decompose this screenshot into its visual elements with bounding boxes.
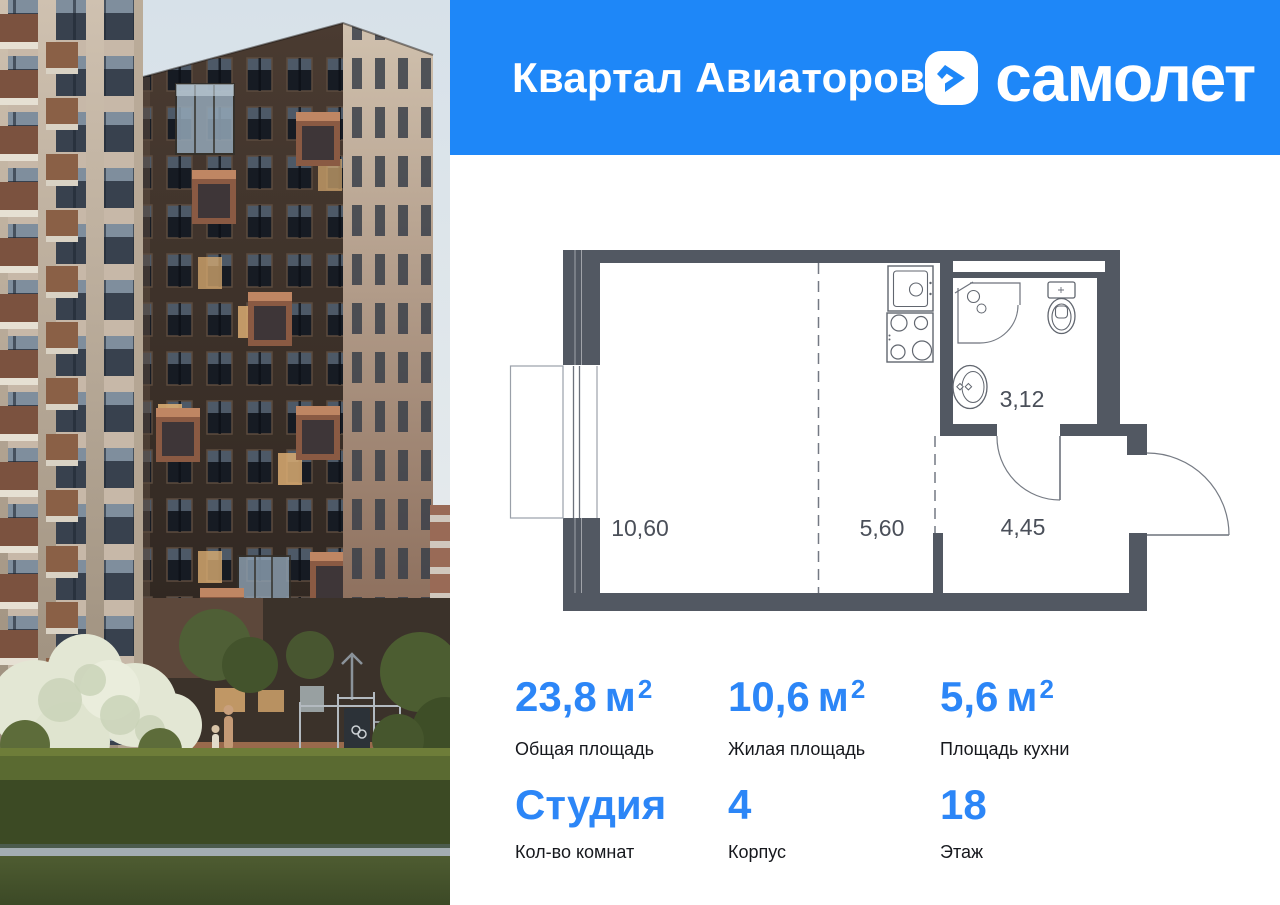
floorplan-drawing: 10,60 5,60 3,12 4,45 xyxy=(450,230,1280,630)
living-area-label: Жилая площадь xyxy=(728,739,940,760)
hallway-area-label: 4,45 xyxy=(1001,514,1046,540)
total-area-label: Общая площадь xyxy=(515,739,728,760)
stat-living-area: 10,6м2 Жилая площадь xyxy=(728,674,940,760)
floor-value: 18 xyxy=(940,782,1280,828)
floor-label: Этаж xyxy=(940,842,1280,863)
kitchen-area-label: Площадь кухни xyxy=(940,739,1280,760)
kitchen-sink xyxy=(888,266,933,311)
project-title: Квартал Авиаторов xyxy=(512,54,925,102)
balcony-window xyxy=(511,366,598,518)
kitchen-area-label: 5,60 xyxy=(860,515,905,541)
header-bar: Квартал Авиаторов самолет xyxy=(450,0,1280,155)
stat-kitchen-area: 5,6м2 Площадь кухни xyxy=(940,674,1280,760)
rooms-label: Кол-во комнат xyxy=(515,842,728,863)
stat-rooms: Студия Кол-во комнат xyxy=(515,782,728,863)
stove xyxy=(887,313,933,362)
samolet-chevron-icon xyxy=(925,51,978,105)
stat-building: 4 Корпус xyxy=(728,782,940,863)
kitchen-area-value: 5,6м2 xyxy=(940,674,1280,725)
toilet xyxy=(1048,282,1075,334)
stat-floor: 18 Этаж xyxy=(940,782,1280,863)
building-label: Корпус xyxy=(728,842,940,863)
brand-name: самолет xyxy=(995,45,1255,111)
unit-info-row: Студия Кол-во комнат 4 Корпус 18 Этаж xyxy=(450,782,1280,863)
area-stats-row: 23,8м2 Общая площадь 10,6м2 Жилая площад… xyxy=(450,674,1280,760)
floorplan: 10,60 5,60 3,12 4,45 xyxy=(450,230,1280,630)
brand-logo: самолет xyxy=(925,45,1255,111)
wash-basin xyxy=(953,366,987,409)
stat-total-area: 23,8м2 Общая площадь xyxy=(515,674,728,760)
bathroom-area-label: 3,12 xyxy=(1000,386,1045,412)
shower xyxy=(955,282,1020,343)
building-value: 4 xyxy=(728,782,940,828)
living-room-area-label: 10,60 xyxy=(611,515,669,541)
living-area-value: 10,6м2 xyxy=(728,674,940,725)
total-area-value: 23,8м2 xyxy=(515,674,728,725)
rooms-value: Студия xyxy=(515,782,728,828)
residential-buildings-illustration xyxy=(0,0,450,905)
hero-photo xyxy=(0,0,450,905)
